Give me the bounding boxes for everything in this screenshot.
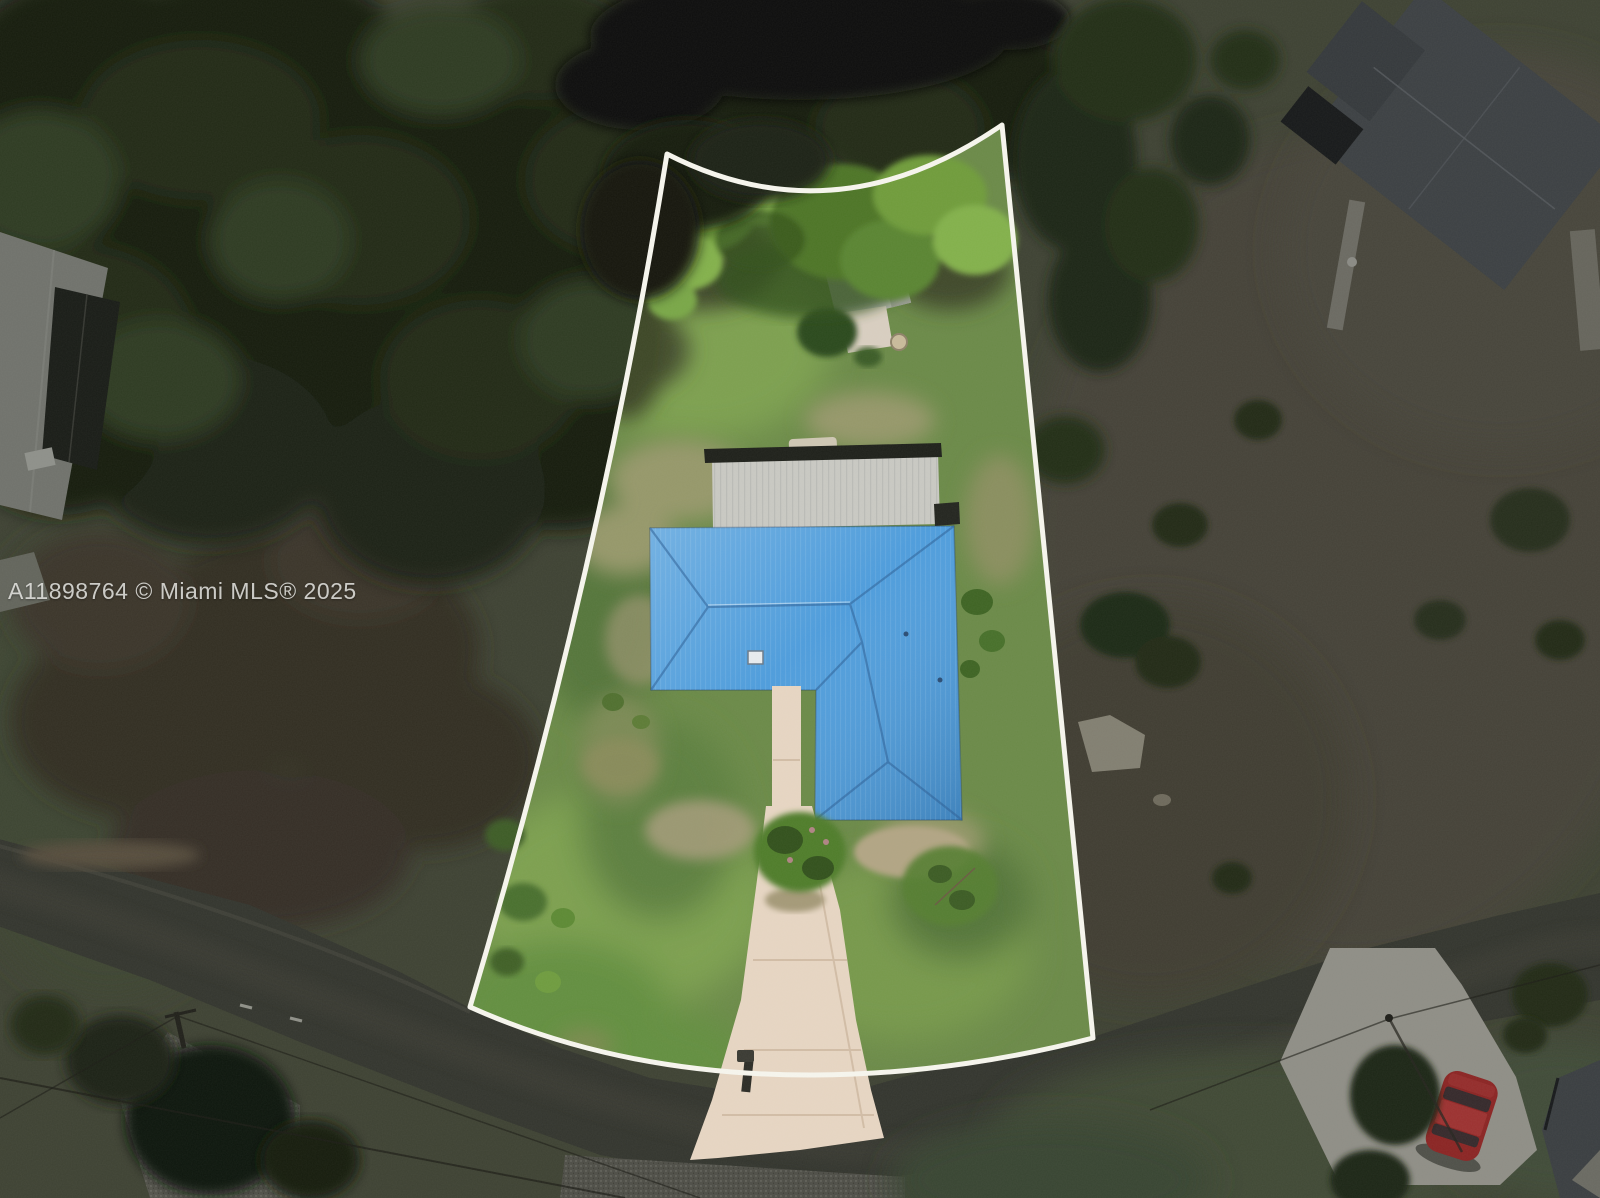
grain-overlay [0,0,1600,1198]
photo-canvas [0,0,1600,1198]
aerial-property-photo: A11898764 © Miami MLS® 2025 [0,0,1600,1198]
